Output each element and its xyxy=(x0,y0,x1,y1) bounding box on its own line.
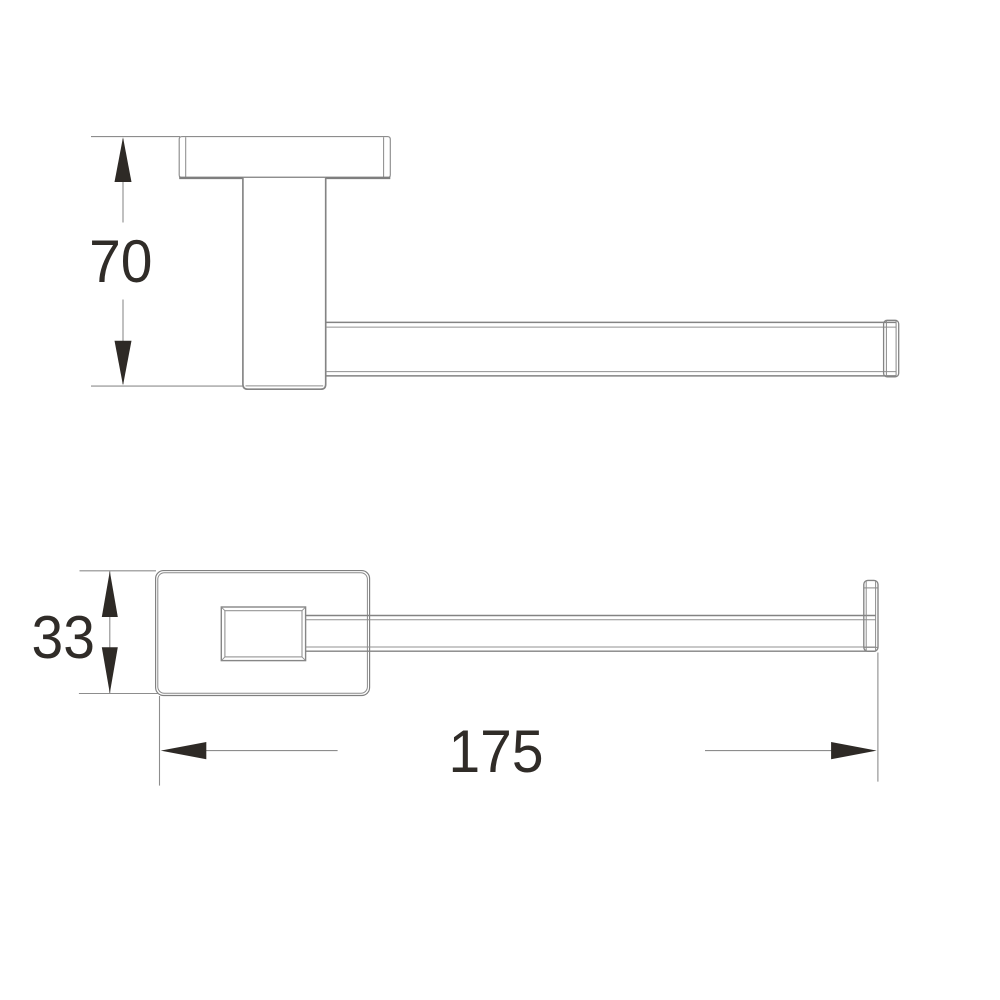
svg-text:70: 70 xyxy=(89,228,152,295)
svg-text:33: 33 xyxy=(32,604,95,671)
svg-text:175: 175 xyxy=(449,718,544,785)
